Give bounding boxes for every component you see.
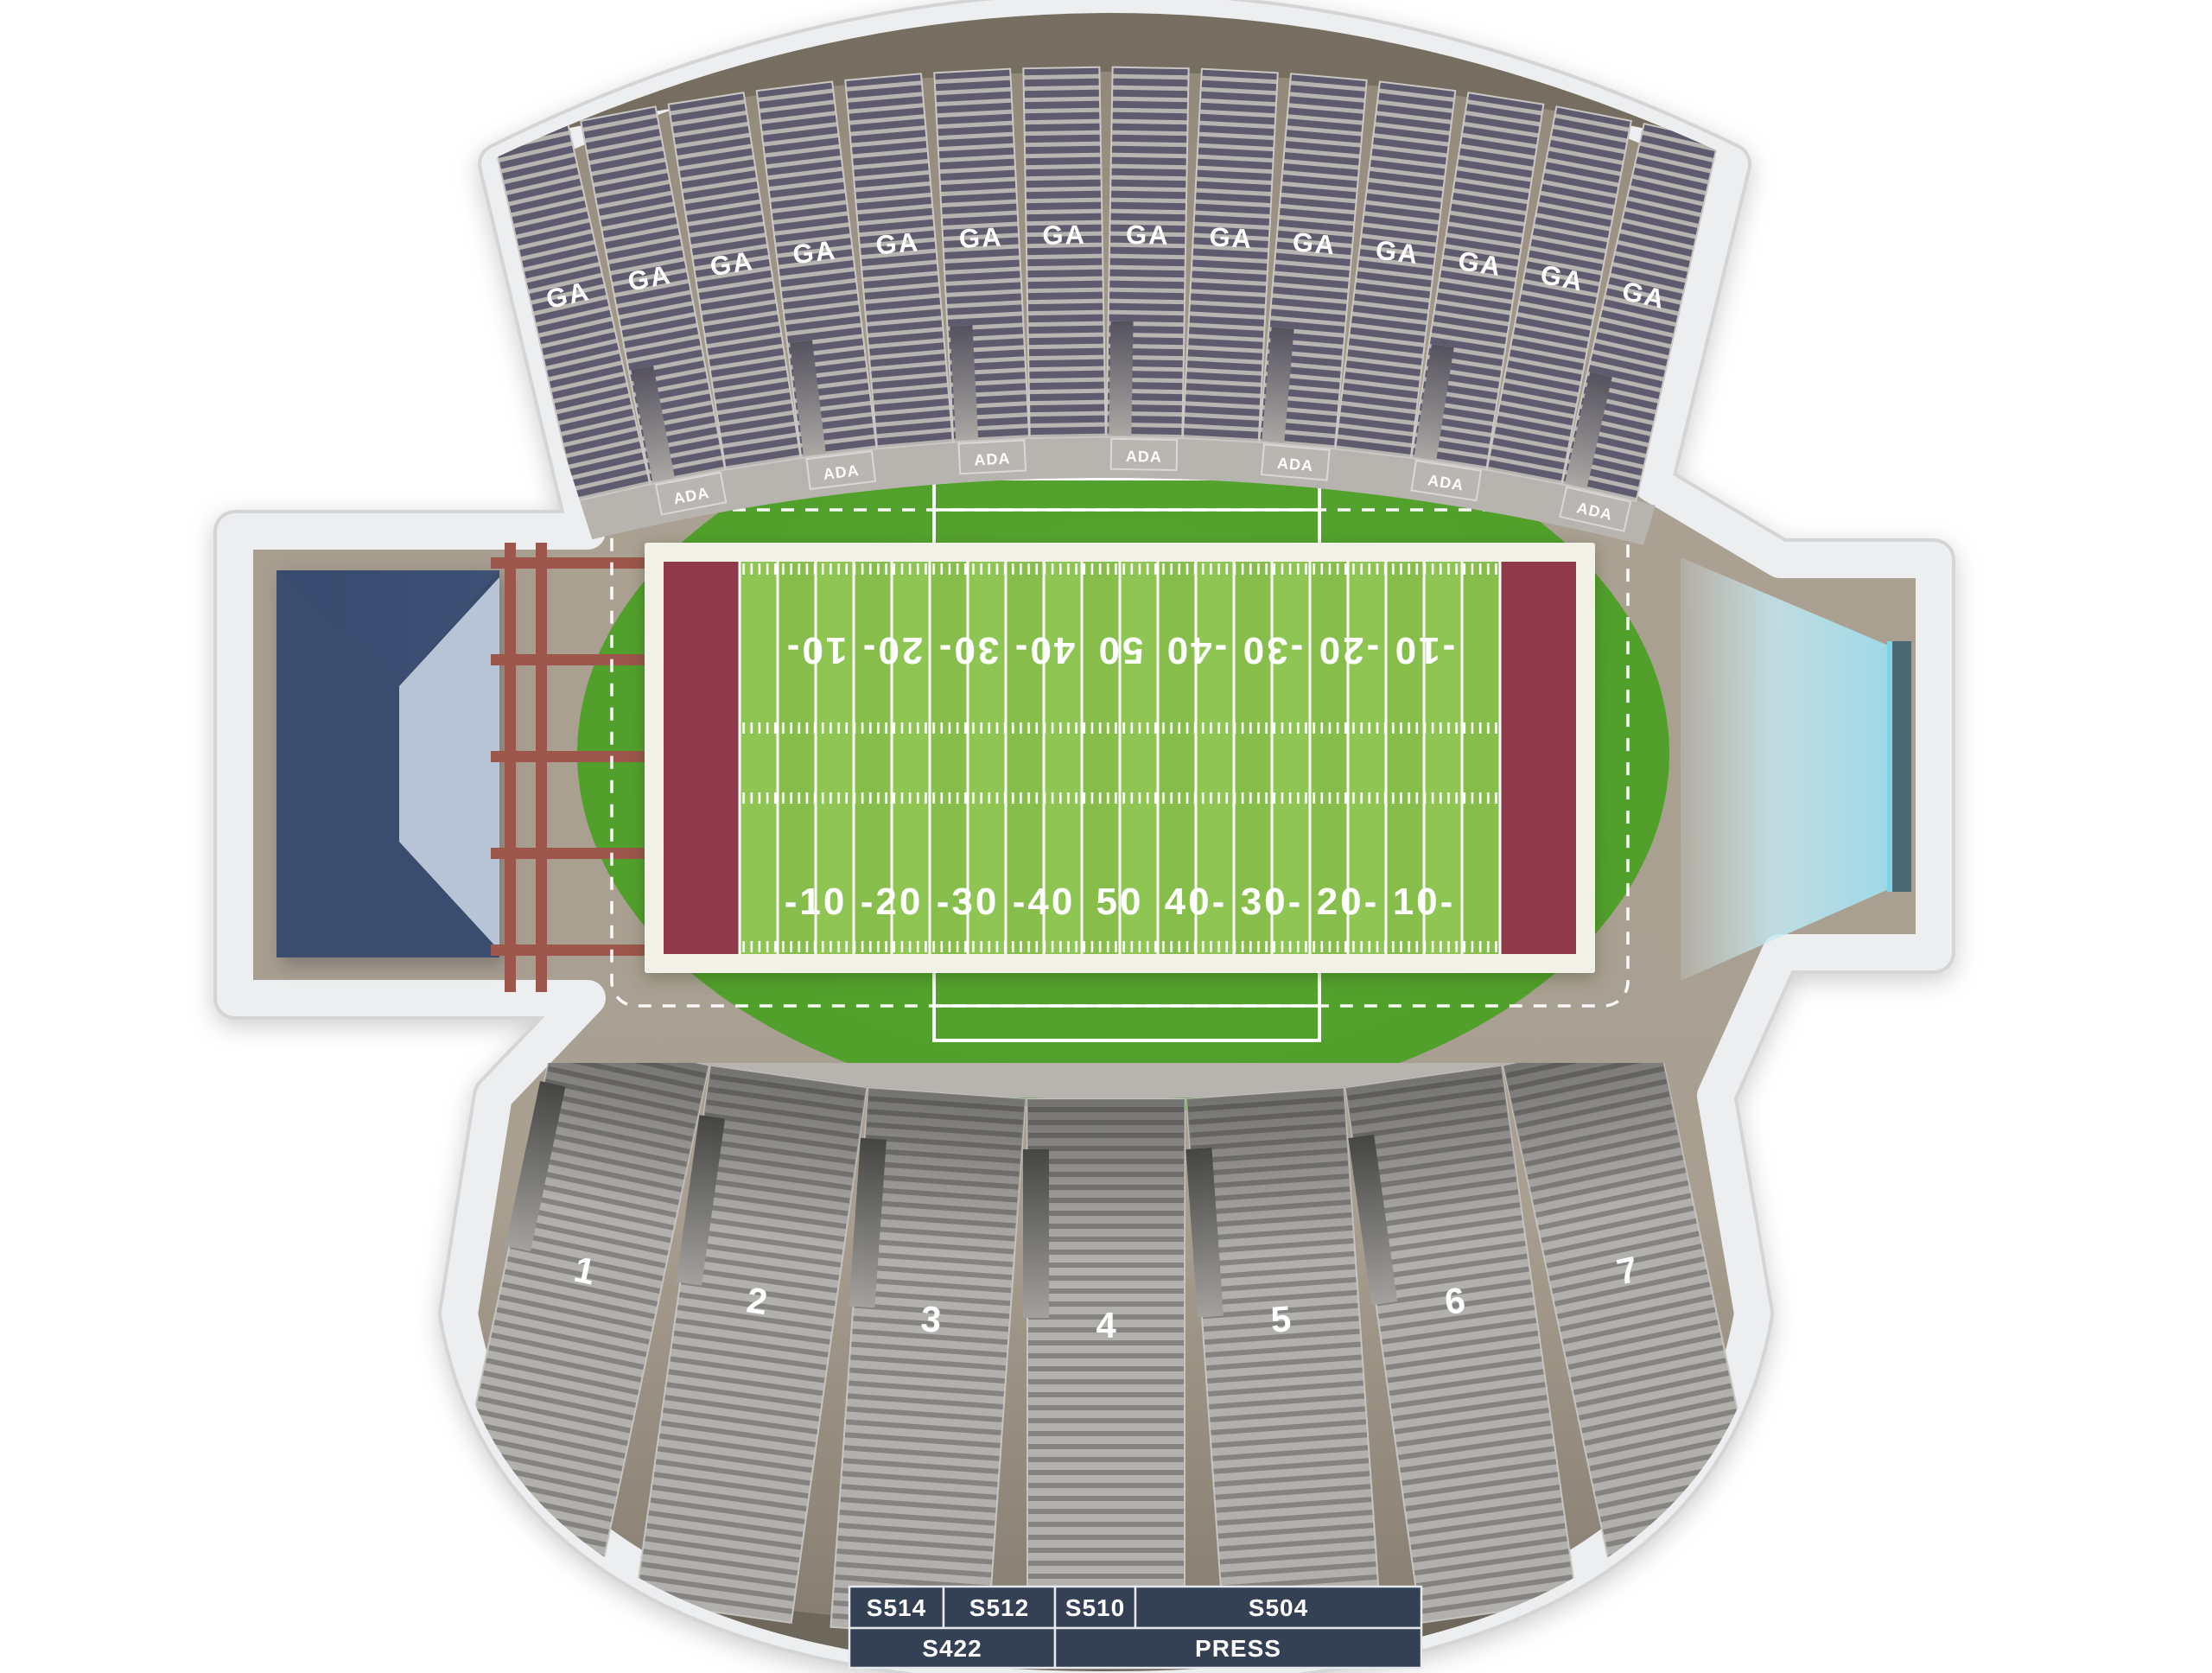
ga-section[interactable]: GA xyxy=(1023,67,1105,438)
yard-number-bottom: 40- xyxy=(1165,881,1228,923)
videoboard-screen-edge xyxy=(1887,641,1892,892)
section-4[interactable]: 4 xyxy=(1023,1099,1185,1639)
yard-number-bottom: -20 xyxy=(861,881,924,923)
lattice-bar xyxy=(491,945,645,956)
ada-spot[interactable]: ADA xyxy=(1111,439,1178,470)
suite-S510[interactable]: S510 xyxy=(1055,1587,1135,1628)
yard-number-bottom: 10- xyxy=(1393,881,1456,923)
section-number: 3 xyxy=(919,1298,943,1340)
suite-label: S514 xyxy=(867,1594,926,1621)
yard-number-top: 20- xyxy=(861,629,924,671)
suite-S512[interactable]: S512 xyxy=(944,1587,1055,1628)
suite-label: S512 xyxy=(969,1594,1029,1621)
lattice-bar xyxy=(491,751,645,762)
suite-label: S422 xyxy=(922,1635,982,1662)
yard-number-top: 30- xyxy=(937,629,1000,671)
yard-number-bottom: -30 xyxy=(937,881,1000,923)
end-zone-left xyxy=(664,562,740,954)
yard-number-bottom: 20- xyxy=(1317,881,1380,923)
end-zone-right xyxy=(1500,562,1576,954)
tunnel xyxy=(1109,321,1133,436)
section-number: 4 xyxy=(1096,1305,1116,1345)
yard-number-bottom: 50 xyxy=(1096,881,1144,923)
suite-label: S510 xyxy=(1065,1594,1125,1621)
lattice-bar xyxy=(491,654,645,665)
yard-number-top: -10 xyxy=(1393,629,1456,671)
yard-number-bottom: 30- xyxy=(1241,881,1304,923)
suite-label: PRESS xyxy=(1195,1635,1281,1662)
suite-PRESS[interactable]: PRESS xyxy=(1055,1628,1421,1668)
stadium-svg: 10-20-30-40-50-40-30-20-10-10-20-30-4050… xyxy=(0,0,2212,1673)
suite-label: S504 xyxy=(1249,1594,1308,1621)
yard-number-bottom: -40 xyxy=(1013,881,1076,923)
ga-section-label: GA xyxy=(1209,221,1254,254)
yard-number-top: -30 xyxy=(1241,629,1304,671)
yard-number-top: 10- xyxy=(785,629,848,671)
stadium-seat-map: 10-20-30-40-50-40-30-20-10-10-20-30-4050… xyxy=(0,0,2212,1673)
lattice-bar xyxy=(491,557,645,569)
suite-S504[interactable]: S504 xyxy=(1135,1587,1421,1628)
ada-spot[interactable]: ADA xyxy=(958,440,1026,474)
yard-number-bottom: -10 xyxy=(785,881,848,923)
suite-S422[interactable]: S422 xyxy=(849,1628,1055,1668)
ga-section[interactable]: GA xyxy=(1106,67,1188,438)
ada-label: ADA xyxy=(974,449,1011,468)
yard-number-top: 50 xyxy=(1096,629,1144,671)
section-number: 5 xyxy=(1269,1298,1293,1340)
ga-section-label: GA xyxy=(874,226,920,260)
yard-number-top: 40- xyxy=(1013,629,1076,671)
ga-section-label: GA xyxy=(1292,226,1338,260)
ga-section-label: GA xyxy=(1042,219,1086,251)
football-field: 10-20-30-40-50-40-30-20-10-10-20-30-4050… xyxy=(612,479,1628,1040)
ga-section-label: GA xyxy=(958,221,1003,254)
yard-number-top: -20 xyxy=(1317,629,1380,671)
ga-section-label: GA xyxy=(1374,234,1421,270)
suite-S514[interactable]: S514 xyxy=(849,1587,944,1628)
ada-label: ADA xyxy=(1276,455,1314,475)
ga-section-label: GA xyxy=(1126,219,1170,251)
ada-spot[interactable]: ADA xyxy=(1262,444,1330,480)
tunnel xyxy=(1023,1149,1049,1318)
ada-label: ADA xyxy=(1126,448,1162,466)
lattice-bar xyxy=(491,848,645,859)
lattice-bar xyxy=(536,543,547,992)
yard-number-top: -40 xyxy=(1165,629,1228,671)
ga-section-label: GA xyxy=(791,234,838,270)
press-box-bar: S514S512S510S504S422PRESS xyxy=(849,1587,1421,1668)
lattice-bar xyxy=(505,543,516,992)
